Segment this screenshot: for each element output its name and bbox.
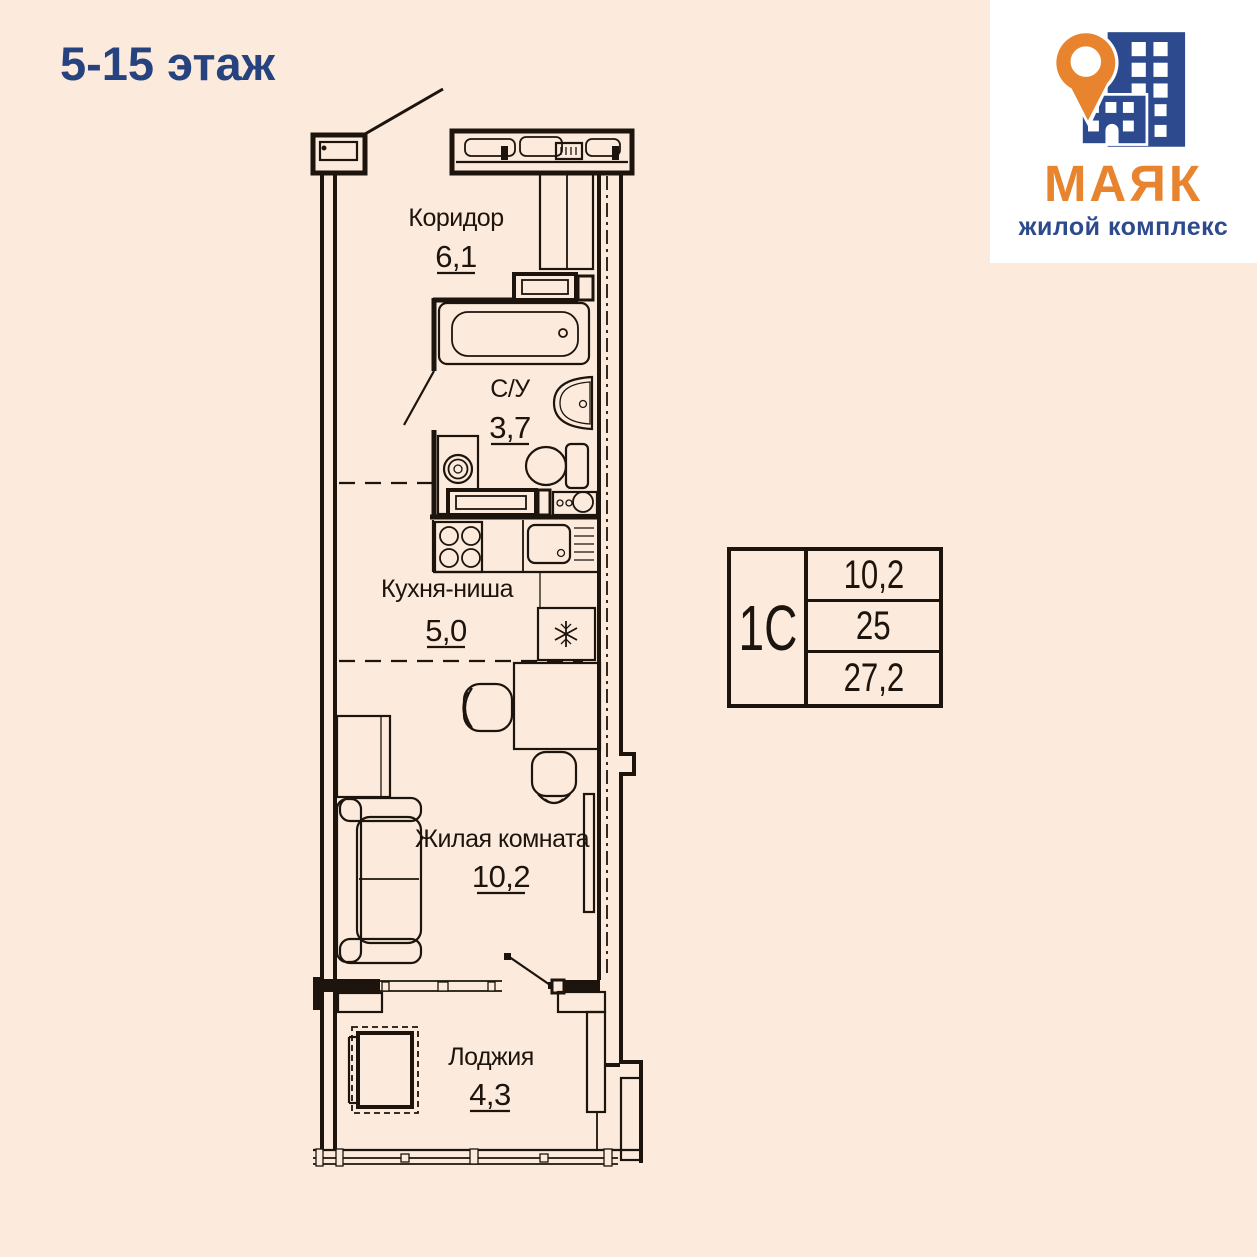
corridor-area: 6,1 bbox=[435, 239, 477, 274]
desk-chair bbox=[532, 752, 576, 803]
stove-icon bbox=[440, 527, 480, 567]
loggia-area: 4,3 bbox=[469, 1077, 511, 1112]
bathtub bbox=[439, 303, 589, 364]
bath-wall-door-unit bbox=[448, 490, 597, 515]
left-wall bbox=[313, 173, 335, 1150]
chair bbox=[463, 684, 512, 731]
bathroom-label: С/У bbox=[490, 375, 530, 403]
fridge bbox=[538, 572, 595, 660]
kitchen-sink-icon bbox=[528, 525, 594, 563]
bathroom-area: 3,7 bbox=[489, 410, 531, 445]
corridor-closet bbox=[540, 173, 593, 269]
room-labels: Коридор 6,1 С/У 3,7 Кухня-ниша 5,0 Жилая… bbox=[381, 204, 590, 1112]
balcony-door bbox=[504, 953, 564, 993]
dining-table bbox=[463, 663, 600, 803]
snowflake-icon bbox=[555, 621, 577, 647]
unit-type: 1С bbox=[738, 591, 797, 665]
sofa bbox=[337, 798, 421, 963]
floor-plan: Коридор 6,1 С/У 3,7 Кухня-ниша 5,0 Жилая… bbox=[0, 0, 1257, 1257]
unit-type-cell: 1С bbox=[731, 551, 808, 704]
living-label: Жилая комната bbox=[415, 825, 590, 853]
entry-left-wall bbox=[313, 135, 365, 173]
stamp-area-row: 25 bbox=[808, 602, 939, 653]
corridor-label: Коридор bbox=[408, 204, 503, 232]
living-area: 10,2 bbox=[472, 859, 530, 894]
loggia-cabinet bbox=[349, 1027, 418, 1113]
flyer: 5-15 этаж bbox=[0, 0, 1257, 1257]
entry-top-wall bbox=[452, 131, 632, 173]
toilet bbox=[526, 444, 588, 488]
kitchen-label: Кухня-ниша bbox=[381, 575, 514, 603]
kitchen-counter bbox=[433, 520, 597, 572]
stamp-total-area-row: 27,2 bbox=[808, 653, 939, 704]
loggia-label: Лоджия bbox=[448, 1043, 534, 1071]
loggia-glazing bbox=[313, 1149, 641, 1166]
balcony-window bbox=[322, 953, 600, 993]
bathroom-walls bbox=[404, 298, 600, 517]
kitchen-area: 5,0 bbox=[425, 613, 467, 648]
stamp-living-area-row: 10,2 bbox=[808, 551, 939, 602]
living-wardrobe bbox=[337, 716, 390, 797]
radiator bbox=[584, 794, 594, 912]
unit-stamp: 1С 10,2 25 27,2 bbox=[727, 547, 943, 708]
entry-door-swing bbox=[365, 89, 443, 134]
sink-basin bbox=[554, 377, 592, 429]
loggia-walls bbox=[338, 992, 641, 1160]
bathroom-door bbox=[514, 274, 593, 300]
